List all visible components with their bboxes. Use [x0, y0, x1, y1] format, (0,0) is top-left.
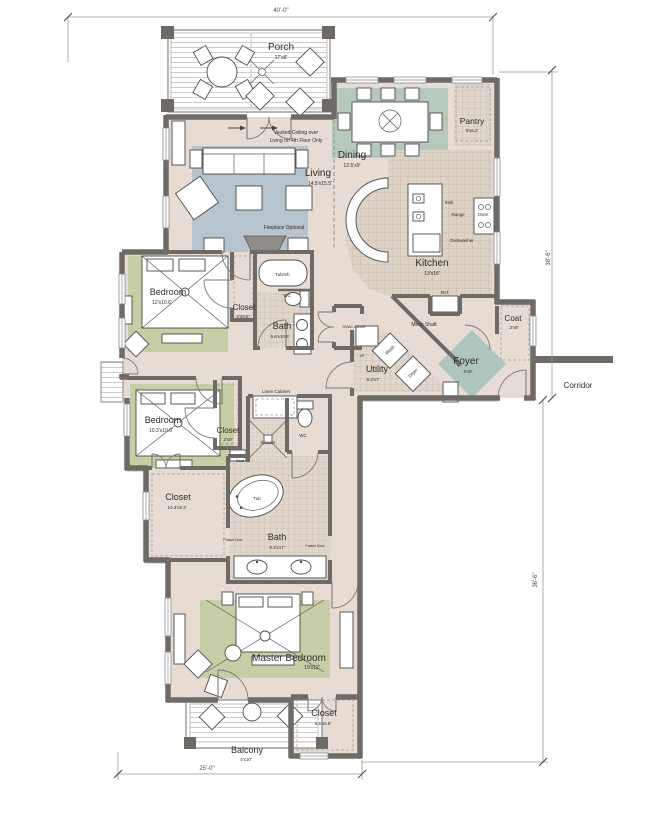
refrigerator [432, 296, 458, 312]
hvac-unit [356, 326, 378, 346]
closet2-size: 2'x9' [224, 437, 233, 442]
balcony-name: Balcony [231, 745, 264, 755]
corridor-name: Corridor [564, 381, 593, 390]
kitchen-name: Kitchen [415, 258, 448, 269]
closet4-size: 6.5'x5.6' [315, 721, 332, 726]
floorplan-drawing: Porch17'x8'Vaulted Ceiling overLiving on… [0, 0, 668, 815]
living-size: 14.5'x15.5' [308, 181, 332, 187]
oven-label: Oven [478, 212, 489, 217]
wc1-label: WC [283, 293, 291, 298]
vanity-2 [234, 556, 326, 578]
note-fireplace: Fireplace Optional [264, 225, 305, 231]
mech-shaft-label: Mech Shaft [411, 322, 437, 328]
closet1-name: Closet [233, 303, 256, 312]
bed-1-bench [162, 334, 202, 343]
wc2-label: WC [299, 433, 307, 438]
utility-size: 8.3'x7' [367, 377, 380, 382]
range-label: Range [451, 212, 465, 217]
balcony-size: 4'x10' [240, 757, 252, 762]
living-name: Living [305, 168, 331, 179]
side-balcony-deck [101, 362, 123, 402]
dim-top: 40'-0" [273, 8, 288, 14]
porch-table [207, 57, 237, 87]
floorplan-page: Porch17'x8'Vaulted Ceiling overLiving on… [0, 0, 668, 815]
bath2-name: Bath [268, 532, 287, 542]
closet1-size: 2'x6.6' [237, 314, 250, 319]
master-name: Master Bedroom [252, 653, 326, 664]
bath1-name: Bath [273, 321, 292, 331]
hvac-label: HVAC Above [342, 324, 366, 329]
dining-size: 12.5'x9' [344, 163, 361, 169]
pantry-size: 5'x6.3' [466, 128, 479, 133]
toilet-2 [297, 401, 313, 427]
seat-label: Seat [236, 458, 245, 463]
bedroom2-name: Bedroom [145, 415, 182, 425]
closet3-size: 10.3'x8.3' [168, 505, 187, 510]
pantry-name: Pantry [460, 116, 485, 126]
dim-right-upper: 38'-6" [546, 250, 552, 265]
tubsh-label: Tub/Sh. [275, 272, 291, 277]
bath1-size: 5.6'x10.6' [271, 334, 290, 339]
closet2-name: Closet [217, 426, 240, 435]
master-size: 19'x12' [304, 665, 320, 671]
foyer-name: Foyer [453, 356, 479, 367]
note-vaulted-1: Vaulted Ceiling over [274, 130, 319, 136]
dim-right-lower: 36'-6" [533, 572, 539, 587]
bedroom2-size: 10.3'x10.6' [149, 428, 173, 434]
bedroom1-size: 12'x10.6' [152, 300, 172, 306]
pocket-door-1: Pocket Door [223, 538, 243, 542]
kitchen-size: 13'x16' [424, 271, 440, 277]
closet4-name: Closet [311, 708, 337, 718]
bedroom1-name: Bedroom [150, 287, 187, 297]
porch-name: Porch [268, 42, 294, 53]
sink-label: Sink [445, 200, 455, 205]
dishwasher-label: Dishwasher [450, 238, 474, 243]
sofa [203, 148, 295, 174]
pocket-door-2: Pocket Door [305, 544, 325, 548]
linen-cabinet [253, 396, 297, 418]
dishwasher [413, 234, 440, 252]
tub-label: Tub [253, 496, 261, 501]
dining-name: Dining [338, 150, 366, 161]
master-dresser-left [174, 614, 185, 664]
dim-bottom: 25'-0" [199, 766, 214, 772]
ref-label: Ref. [441, 290, 449, 295]
coat-size: 2'x9' [510, 325, 519, 330]
linen-label: Linen Cabinet [262, 389, 291, 394]
utility-name: Utility [366, 364, 388, 374]
master-dresser-right [340, 612, 353, 668]
foyer-size: 9'x8' [464, 369, 473, 374]
corridor-wall-stub [533, 356, 613, 363]
coat-name: Coat [505, 314, 523, 323]
up-label: UP [360, 354, 366, 358]
shower-label: Shower [260, 440, 276, 445]
note-vaulted-2: Living on 4th Floor Only [270, 138, 323, 144]
porch-size: 17'x8' [275, 55, 288, 61]
bath2-size: 8.3'x17' [269, 545, 284, 550]
dining-ceiling-fan [379, 110, 401, 132]
closet3-name: Closet [165, 492, 191, 502]
